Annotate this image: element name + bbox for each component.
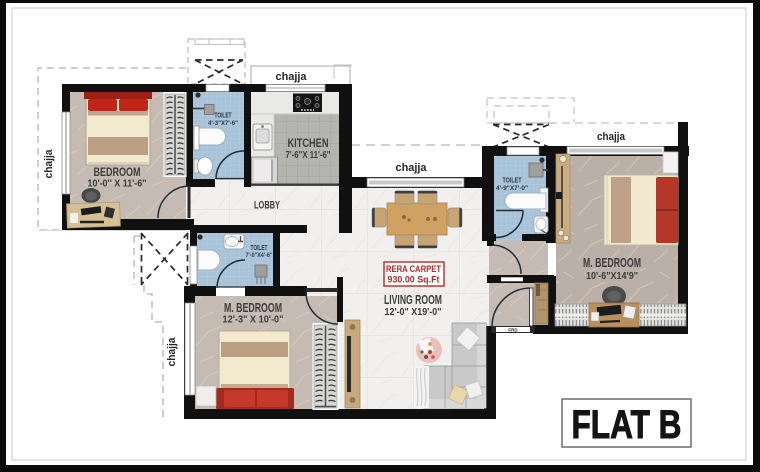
- svg-text:4'-3"X7'-6": 4'-3"X7'-6": [208, 120, 238, 127]
- svg-text:LOBBY: LOBBY: [254, 200, 280, 212]
- svg-text:chajja: chajja: [396, 162, 428, 174]
- svg-text:TOILET: TOILET: [215, 113, 232, 120]
- svg-text:FLAT B: FLAT B: [572, 403, 682, 447]
- svg-text:7'-0"X4'-6": 7'-0"X4'-6": [246, 252, 273, 259]
- svg-text:chajja: chajja: [597, 131, 626, 143]
- svg-text:FRD: FRD: [508, 328, 518, 333]
- svg-text:TOILET: TOILET: [251, 245, 268, 252]
- svg-text:chajja: chajja: [166, 337, 178, 367]
- svg-text:TOILET: TOILET: [503, 178, 523, 185]
- svg-text:10'-0'' X 11'-6": 10'-0'' X 11'-6": [88, 178, 147, 190]
- svg-text:12'-3" X 10'-0": 12'-3" X 10'-0": [223, 314, 284, 326]
- svg-text:4'-9"X7'-0": 4'-9"X7'-0": [496, 185, 528, 192]
- svg-text:10'-6"X14'9": 10'-6"X14'9": [586, 270, 638, 282]
- svg-text:LIVING ROOM: LIVING ROOM: [384, 293, 442, 307]
- svg-text:chajja: chajja: [43, 149, 55, 179]
- svg-text:RERA CARPET: RERA CARPET: [386, 264, 441, 275]
- svg-text:12'-0" X19'-0": 12'-0" X19'-0": [385, 306, 442, 318]
- svg-text:M. BEDROOM: M. BEDROOM: [583, 256, 641, 270]
- svg-text:930.00 Sq.Ft: 930.00 Sq.Ft: [388, 275, 441, 286]
- svg-text:KITCHEN: KITCHEN: [288, 136, 329, 150]
- svg-text:7'-6"X 11'-6": 7'-6"X 11'-6": [286, 149, 331, 161]
- svg-text:chajja: chajja: [276, 71, 308, 83]
